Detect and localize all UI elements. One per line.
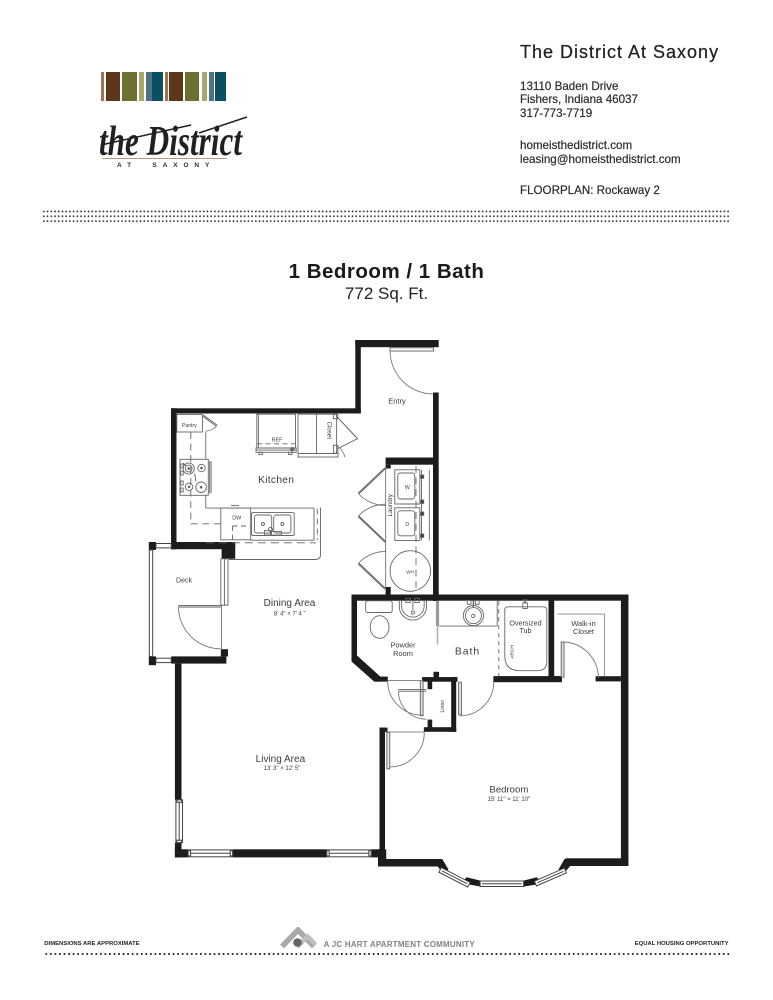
svg-text:ARCH: ARCH bbox=[509, 645, 515, 659]
svg-text:Bath: Bath bbox=[455, 647, 480, 658]
svg-text:Closet: Closet bbox=[326, 422, 333, 440]
svg-text:Linen: Linen bbox=[440, 700, 446, 713]
svg-text:Deck: Deck bbox=[176, 578, 192, 585]
svg-text:Dining Area: Dining Area bbox=[264, 598, 316, 609]
svg-text:8' 4" × 7' 4 ": 8' 4" × 7' 4 " bbox=[274, 611, 306, 617]
svg-text:REF: REF bbox=[272, 437, 283, 443]
svg-text:Laundry: Laundry bbox=[387, 493, 394, 516]
svg-text:Closet: Closet bbox=[573, 627, 594, 636]
svg-text:Tub: Tub bbox=[519, 626, 531, 635]
svg-text:D: D bbox=[405, 522, 409, 528]
svg-text:DW: DW bbox=[232, 516, 242, 522]
svg-text:Bedroom: Bedroom bbox=[489, 785, 528, 796]
svg-text:Kitchen: Kitchen bbox=[258, 475, 294, 486]
svg-text:13' 3" × 12' 5": 13' 3" × 12' 5" bbox=[264, 766, 301, 772]
svg-text:15' 11" × 11' 10": 15' 11" × 11' 10" bbox=[488, 797, 531, 803]
svg-text:Living Area: Living Area bbox=[256, 754, 306, 765]
svg-text:W: W bbox=[405, 485, 410, 491]
svg-text:Pantry: Pantry bbox=[182, 423, 197, 429]
svg-text:WH: WH bbox=[406, 569, 415, 575]
svg-text:Room: Room bbox=[393, 649, 413, 658]
svg-text:Entry: Entry bbox=[388, 397, 406, 406]
